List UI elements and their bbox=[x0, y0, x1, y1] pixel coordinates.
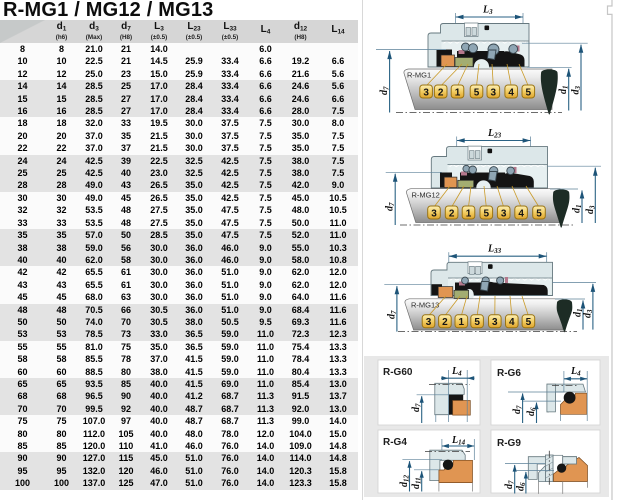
svg-text:L23: L23 bbox=[487, 128, 502, 140]
svg-text:3: 3 bbox=[492, 317, 498, 328]
svg-text:d7: d7 bbox=[379, 86, 391, 95]
svg-text:5: 5 bbox=[536, 208, 542, 219]
svg-text:3: 3 bbox=[426, 317, 432, 328]
svg-text:4: 4 bbox=[518, 208, 524, 219]
svg-text:L3: L3 bbox=[482, 5, 493, 17]
svg-text:d3: d3 bbox=[571, 86, 583, 95]
svg-text:5: 5 bbox=[526, 317, 532, 328]
svg-text:4: 4 bbox=[508, 87, 514, 98]
svg-text:5: 5 bbox=[484, 208, 490, 219]
svg-text:5: 5 bbox=[526, 87, 532, 98]
svg-text:R-G4: R-G4 bbox=[383, 437, 407, 448]
svg-text:2: 2 bbox=[449, 208, 455, 219]
svg-text:d1: d1 bbox=[558, 86, 570, 95]
svg-text:d7: d7 bbox=[386, 310, 398, 319]
svg-text:2: 2 bbox=[442, 317, 448, 328]
svg-text:3: 3 bbox=[491, 87, 497, 98]
svg-text:5: 5 bbox=[474, 317, 480, 328]
svg-text:d3: d3 bbox=[582, 309, 594, 318]
svg-text:R-G60: R-G60 bbox=[383, 367, 413, 378]
svg-text:2: 2 bbox=[438, 87, 444, 98]
svg-text:d7: d7 bbox=[385, 202, 397, 211]
svg-text:R-G6: R-G6 bbox=[497, 368, 521, 379]
svg-text:R-G9: R-G9 bbox=[497, 438, 521, 449]
svg-text:L33: L33 bbox=[487, 244, 502, 256]
svg-text:3: 3 bbox=[431, 208, 437, 219]
svg-text:d1: d1 bbox=[572, 205, 584, 214]
svg-text:1: 1 bbox=[459, 317, 465, 328]
svg-text:3: 3 bbox=[501, 208, 507, 219]
svg-text:5: 5 bbox=[474, 87, 480, 98]
svg-text:3: 3 bbox=[423, 87, 429, 98]
svg-text:1: 1 bbox=[466, 208, 472, 219]
svg-text:d3: d3 bbox=[585, 205, 597, 214]
svg-text:R-MG1: R-MG1 bbox=[407, 71, 431, 80]
svg-text:4: 4 bbox=[509, 317, 515, 328]
svg-text:1: 1 bbox=[455, 87, 461, 98]
svg-text:R-MG12: R-MG12 bbox=[412, 191, 440, 200]
